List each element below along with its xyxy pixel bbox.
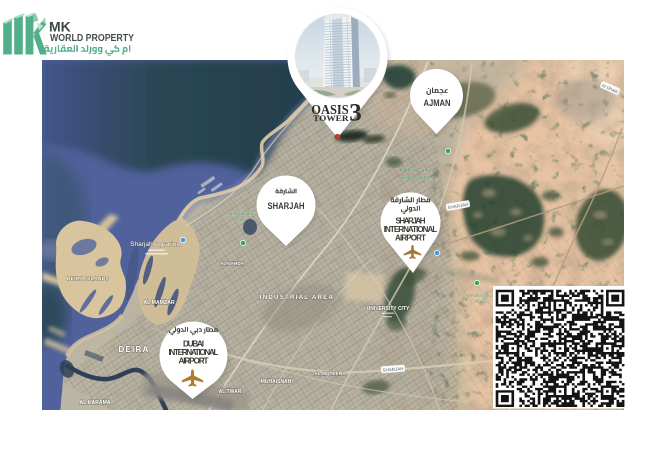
svg-text:Park: Park	[475, 299, 485, 304]
svg-text:MUHAISNAH: MUHAISNAH	[261, 379, 292, 385]
svg-text:AL KARAMA: AL KARAMA	[79, 400, 111, 406]
svg-text:INDUSTRIAL AREA: INDUSTRIAL AREA	[260, 294, 334, 301]
svg-text:UNIVERSITY CITY: UNIVERSITY CITY	[367, 306, 410, 312]
svg-text:Sharjah Aquarium: Sharjah Aquarium	[130, 241, 182, 248]
svg-text:AJMAN: AJMAN	[424, 98, 451, 108]
svg-text:WORLD PROPERTY: WORLD PROPERTY	[50, 33, 134, 44]
svg-text:SHARJAH: SHARJAH	[268, 201, 305, 211]
svg-text:Al Helio Camel: Al Helio Camel	[399, 168, 432, 174]
svg-text:AL TWAR: AL TWAR	[219, 389, 242, 395]
svg-text:AIRPORT: AIRPORT	[395, 234, 426, 243]
svg-text:AIRPORT: AIRPORT	[179, 357, 209, 366]
svg-text:Race Course: Race Course	[401, 175, 430, 181]
svg-text:3: 3	[349, 100, 362, 127]
svg-text:DEIRA ISLANDS: DEIRA ISLANDS	[67, 276, 110, 282]
svg-text:TOWER: TOWER	[313, 113, 349, 123]
svg-text:MK: MK	[49, 19, 71, 35]
svg-text:Al Rahmaniya: Al Rahmaniya	[466, 293, 495, 298]
svg-text:AL NAHDA: AL NAHDA	[220, 261, 245, 266]
svg-text:Abu Shagara: Abu Shagara	[227, 211, 254, 216]
svg-text:DEIRA: DEIRA	[119, 345, 150, 354]
svg-text:Park: Park	[235, 217, 245, 222]
svg-text:AL MAMZAR: AL MAMZAR	[143, 300, 175, 306]
svg-text:AL MUTEENA: AL MUTEENA	[314, 371, 346, 377]
